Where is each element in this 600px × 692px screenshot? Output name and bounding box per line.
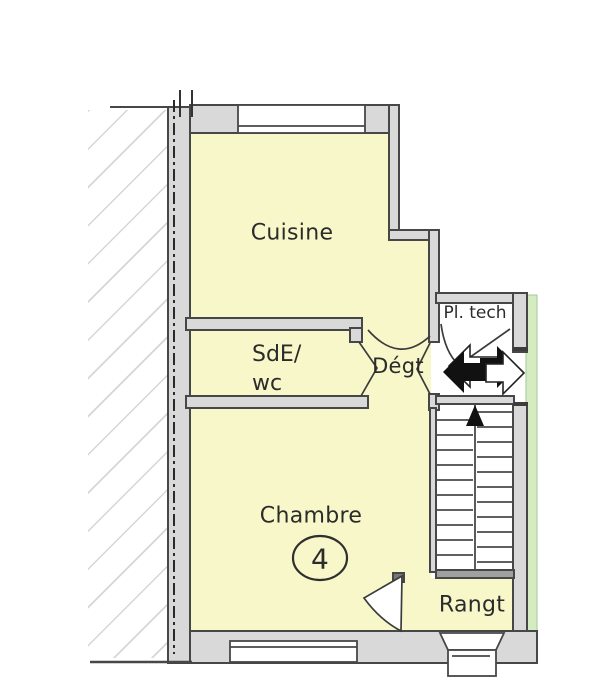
wall-right-lower — [513, 404, 527, 663]
entrance-door-symbol — [440, 633, 504, 676]
wall-sde-door-jamb — [350, 328, 362, 342]
room-label-degt: Dégt — [372, 354, 424, 378]
exit-door-jamb-top — [513, 347, 528, 351]
room-label-cuisine: Cuisine — [251, 221, 334, 246]
entrance-step — [448, 650, 496, 676]
entrance-threshold — [440, 633, 504, 650]
wall-left — [168, 107, 190, 663]
staircase — [436, 404, 513, 570]
exit-door-jamb-bottom — [513, 402, 528, 406]
room-label-rangt: Rangt — [439, 593, 505, 618]
stairs-bottom-step — [436, 570, 514, 578]
wall-cuisine-sde — [186, 318, 362, 330]
sde-line2: wc — [252, 371, 282, 396]
wall-degt-right-upper — [429, 230, 439, 342]
landing-arrows — [443, 345, 524, 394]
room-label-pl-tech: Pl. tech — [443, 303, 506, 323]
sde-line1: SdE/ — [252, 342, 301, 367]
stairs-up-arrow-icon — [466, 405, 484, 426]
room-label-chambre: Chambre — [260, 504, 362, 529]
landing-edge — [436, 396, 514, 404]
wall-stairs-left — [430, 408, 436, 572]
room-number: 4 — [311, 543, 329, 576]
wall-right-upper — [513, 293, 527, 352]
floor-plan: Cuisine SdE/wc Dégt Pl. tech Chambre 4 R… — [0, 0, 600, 692]
window-bottom — [230, 641, 357, 662]
window-top — [238, 105, 365, 133]
wall-pltech-top — [436, 293, 517, 303]
wall-cuisine-right — [389, 105, 399, 240]
room-label-sde-wc: SdE/wc — [252, 340, 301, 398]
